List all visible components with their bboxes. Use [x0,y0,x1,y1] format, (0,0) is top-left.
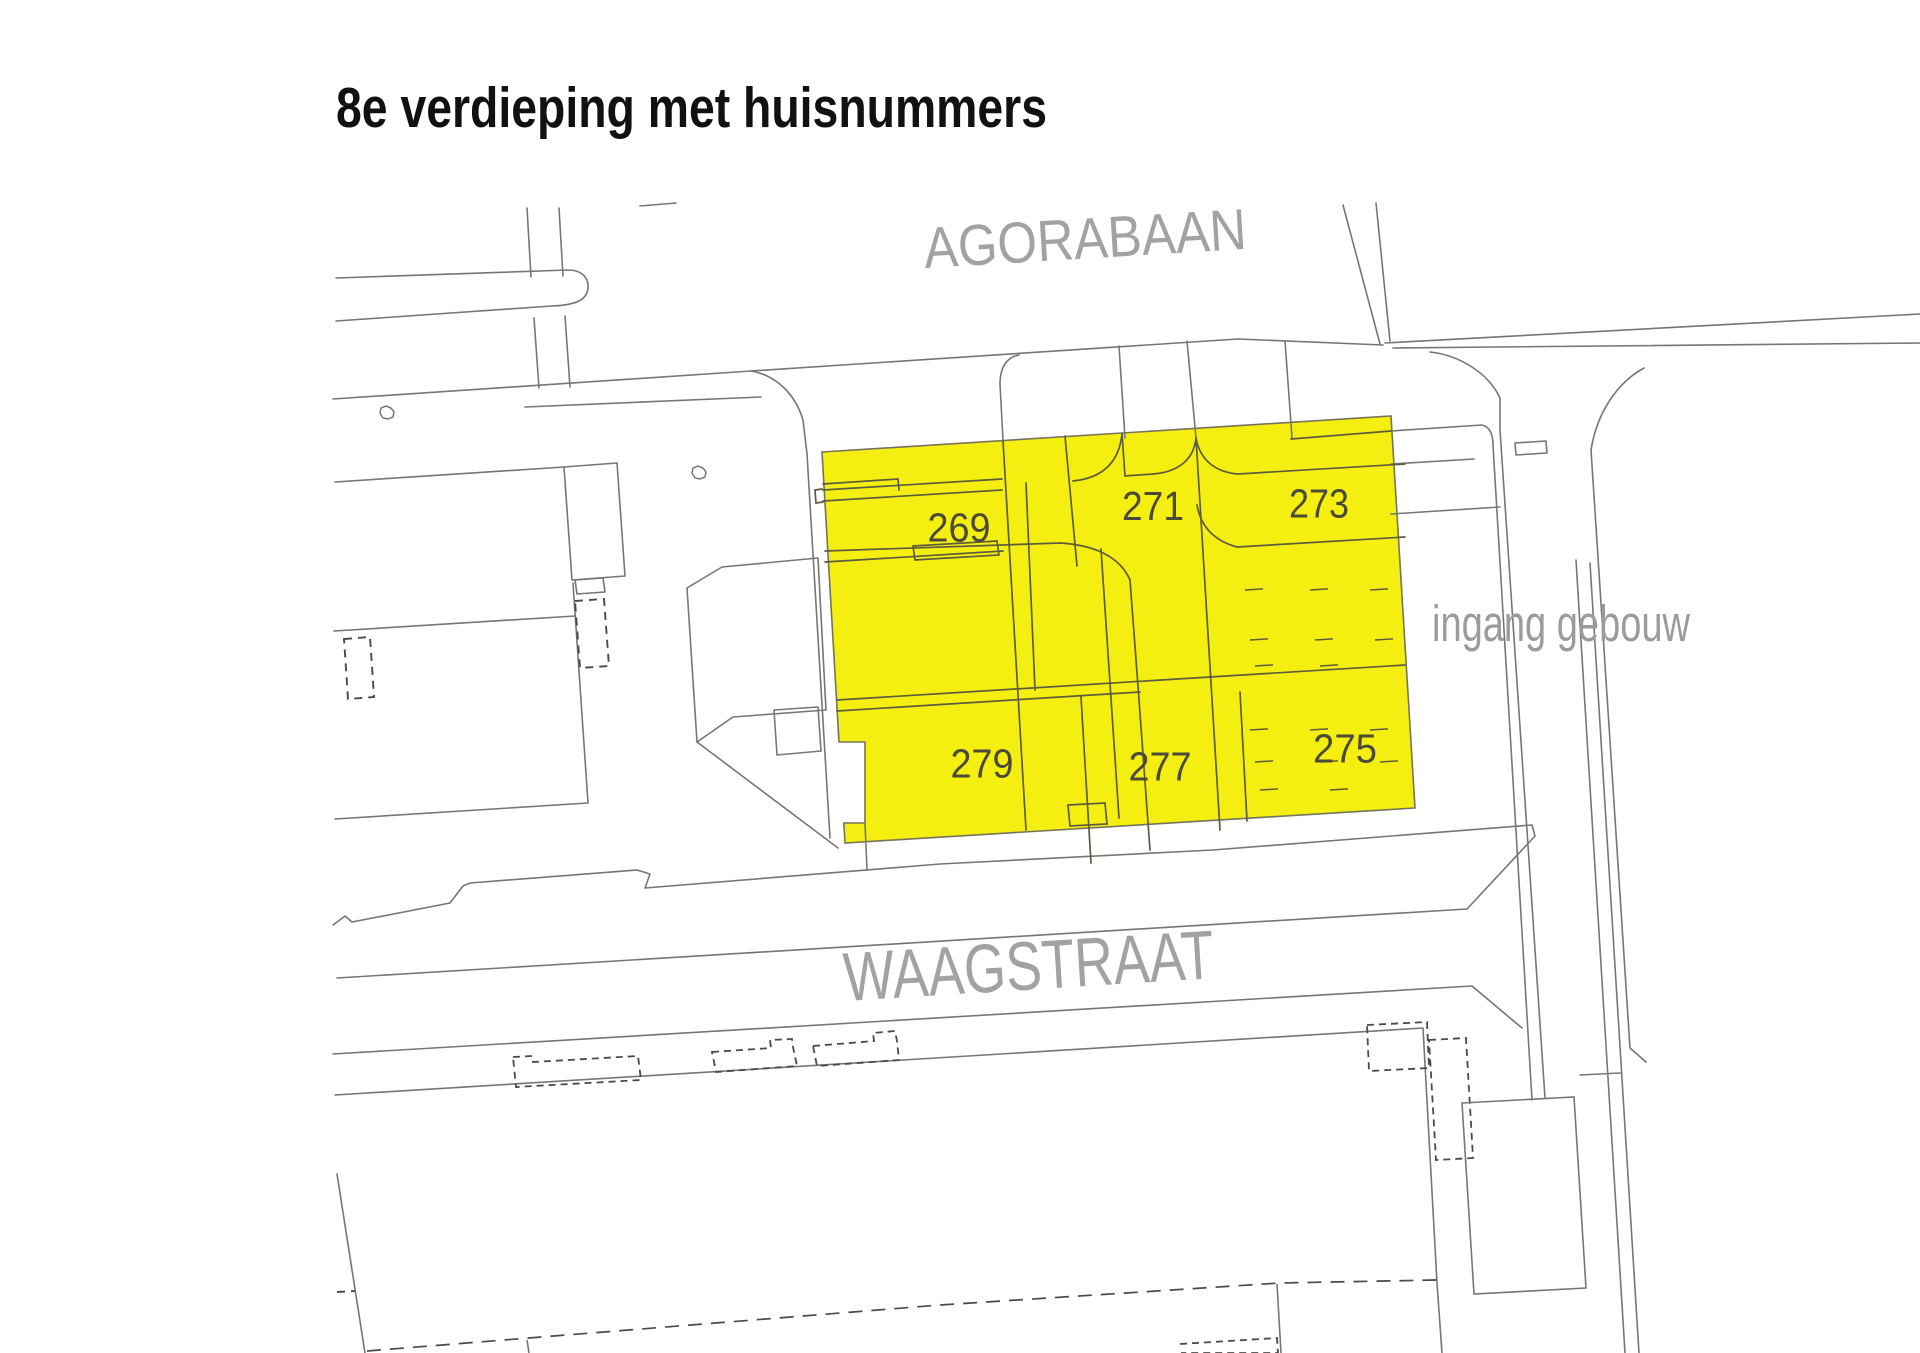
svg-text:269: 269 [928,505,991,551]
svg-text:271: 271 [1122,483,1184,529]
svg-text:275: 275 [1313,726,1377,772]
svg-text:277: 277 [1129,744,1192,790]
svg-text:279: 279 [951,741,1014,787]
svg-text:273: 273 [1289,481,1349,527]
svg-text:8e verdieping met huisnummers: 8e verdieping met huisnummers [336,76,1047,140]
svg-text:ingang gebouw: ingang gebouw [1432,595,1690,652]
